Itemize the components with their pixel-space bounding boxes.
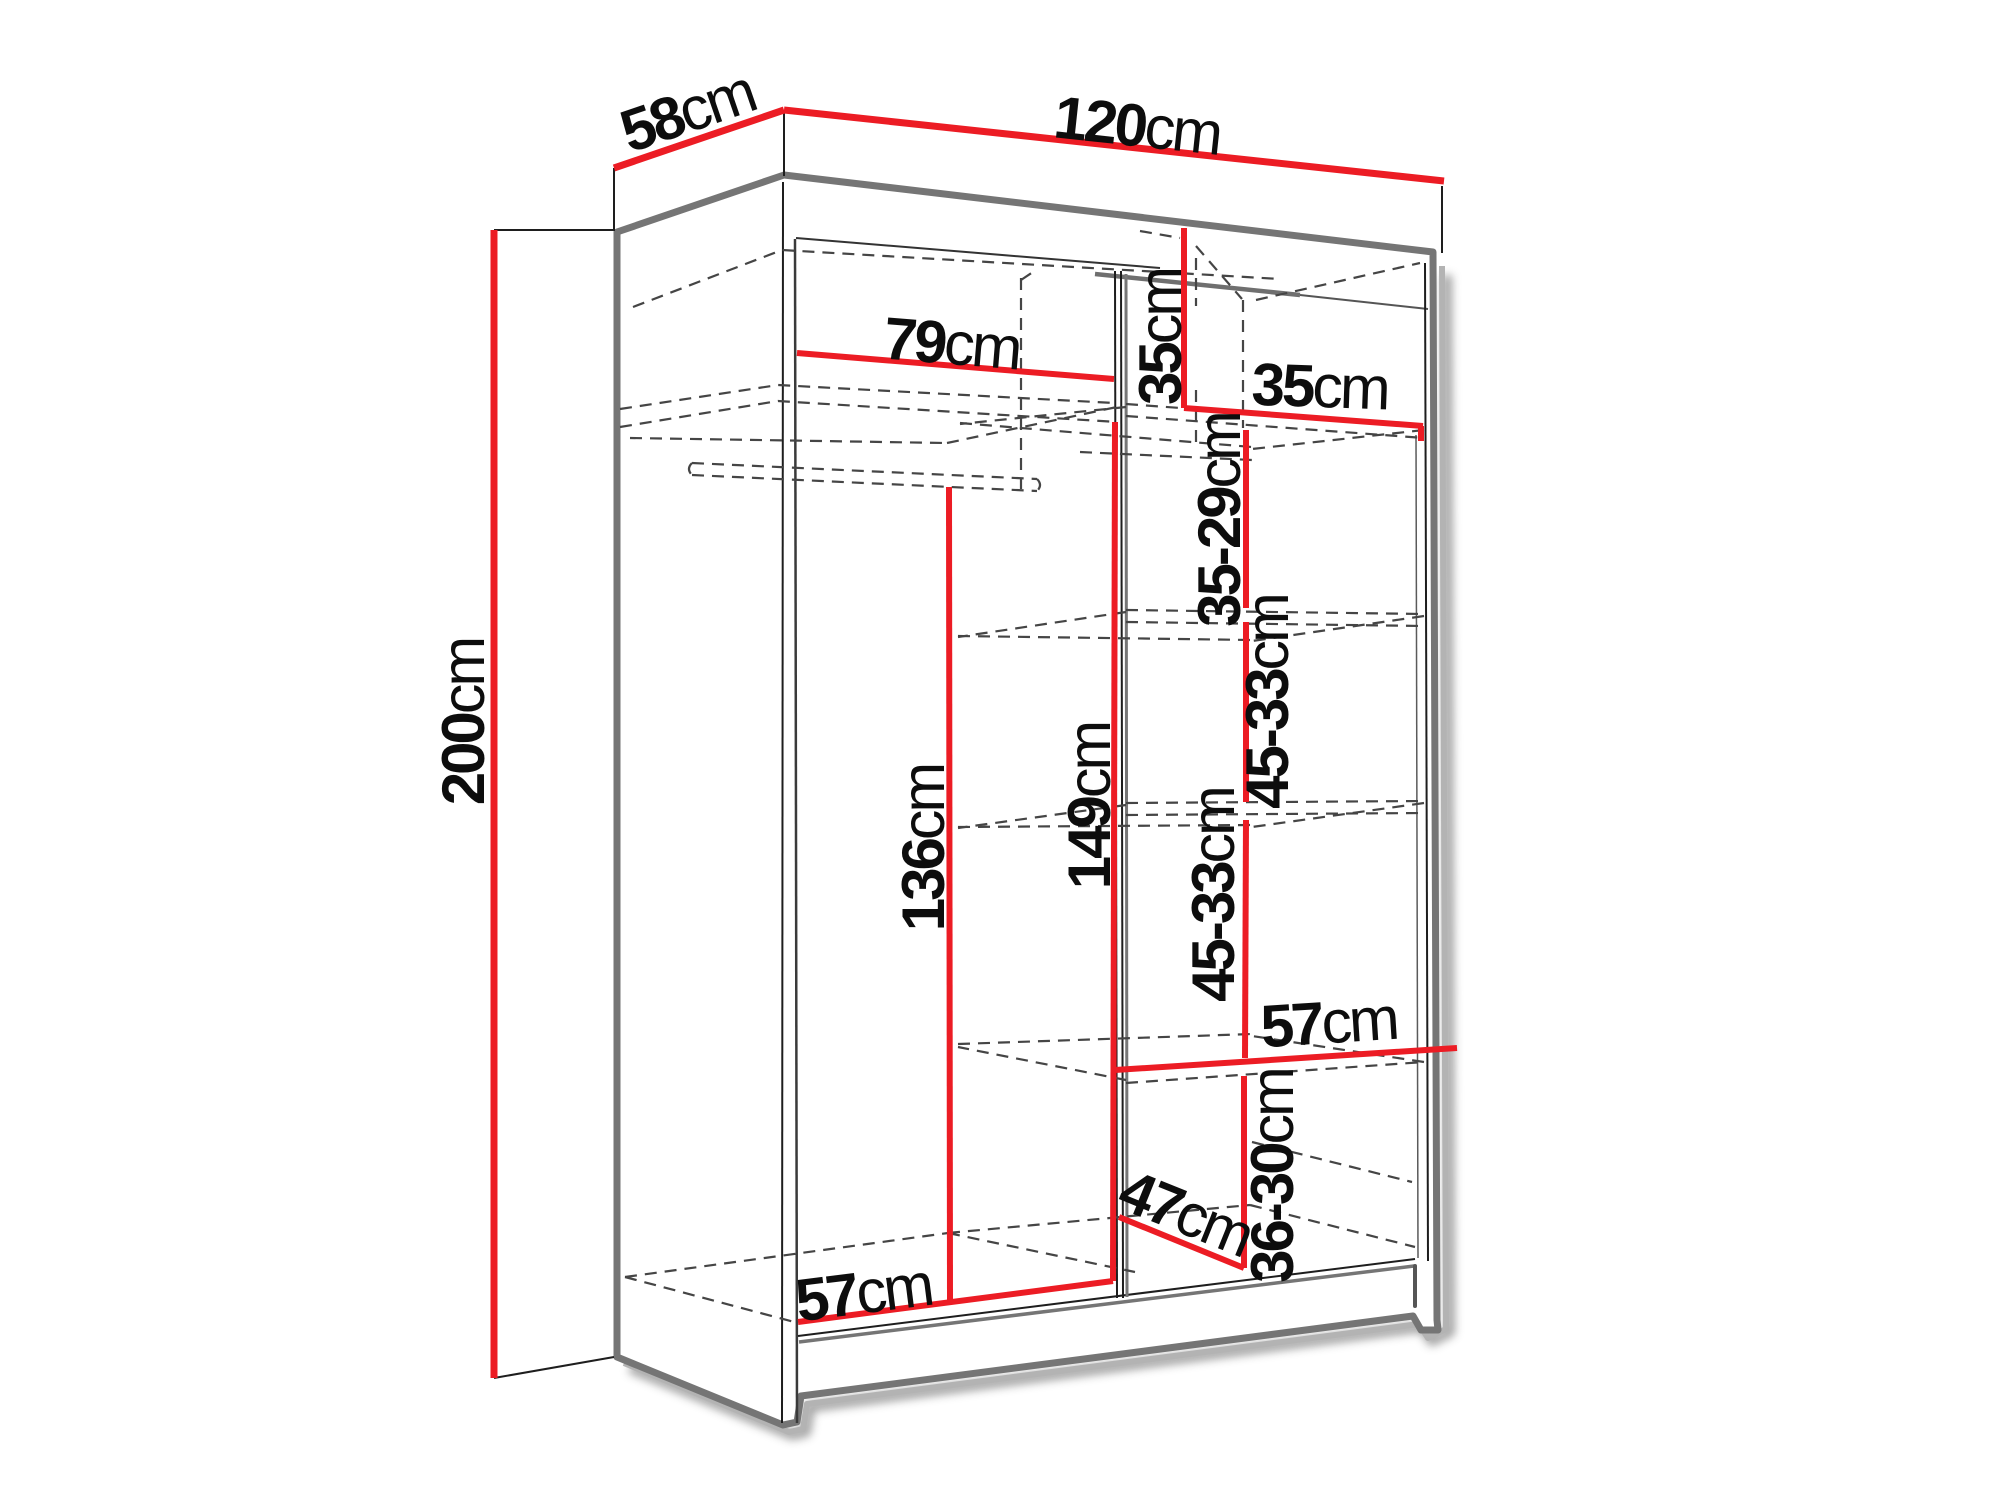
svg-text:120cm: 120cm [1051,82,1224,167]
svg-text:79cm: 79cm [881,304,1022,383]
svg-text:149cm: 149cm [1055,723,1123,889]
svg-text:35-29cm: 35-29cm [1185,413,1253,627]
svg-text:36-30cm: 36-30cm [1238,1069,1306,1283]
svg-text:45-33cm: 45-33cm [1233,595,1301,809]
svg-text:136cm: 136cm [889,765,957,931]
svg-text:57cm: 57cm [1259,984,1399,1061]
svg-text:35cm: 35cm [1251,350,1389,423]
svg-text:35cm: 35cm [1126,269,1194,405]
svg-text:45-33cm: 45-33cm [1179,788,1247,1002]
svg-text:200cm: 200cm [429,639,497,805]
svg-text:58cm: 58cm [612,57,763,166]
